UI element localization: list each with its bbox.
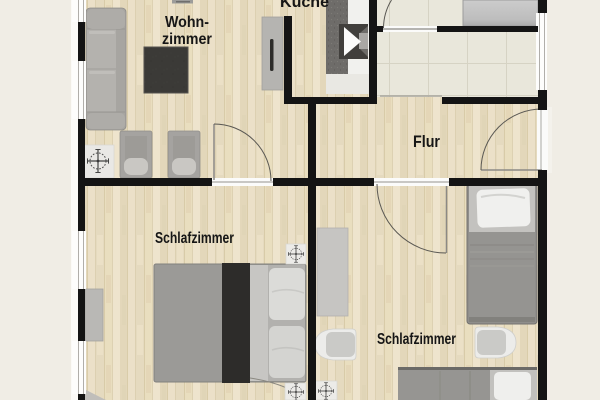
svg-text:Flur: Flur — [413, 132, 440, 151]
svg-text:Schlafzimmer: Schlafzimmer — [155, 230, 234, 247]
svg-text:Schlafzimmer: Schlafzimmer — [377, 331, 456, 348]
svg-text:Küche: Küche — [280, 0, 329, 11]
svg-text:zimmer: zimmer — [162, 31, 212, 48]
svg-text:Wohn-: Wohn- — [165, 14, 209, 31]
